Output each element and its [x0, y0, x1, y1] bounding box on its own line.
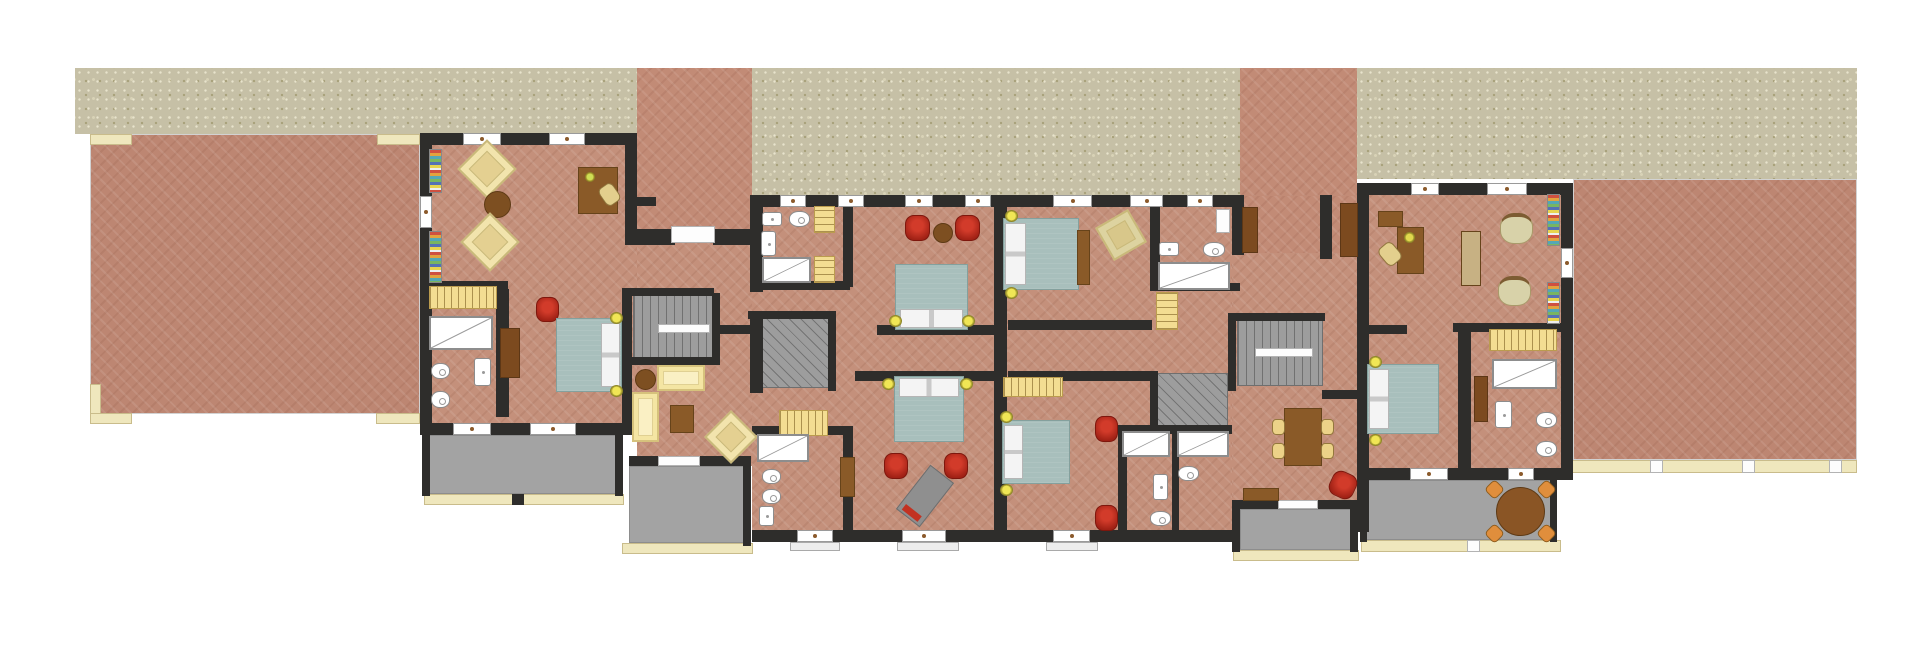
- window-u4-top-1: [1411, 183, 1439, 195]
- sofa-hall-1: [657, 365, 705, 391]
- wall-u3-bottom: [1008, 530, 1232, 542]
- sink-u3b: [1153, 474, 1168, 500]
- stair-unit2-landing: [658, 324, 710, 333]
- wall-porch2-right: [1320, 195, 1332, 259]
- wall-bal3-e: [1350, 502, 1358, 552]
- wall-bal2-e: [743, 456, 751, 546]
- sink-u4: [1495, 401, 1512, 428]
- wall-u1-desk-stub: [632, 197, 656, 206]
- wardrobe-u2-2: [779, 410, 828, 436]
- window-u1-left: [420, 196, 432, 228]
- bookshelf-u4-2: [1547, 282, 1560, 324]
- sideboard-u4: [1378, 211, 1403, 227]
- dining-table-u3: [1284, 408, 1322, 466]
- wall-u4-bath-w: [1458, 330, 1471, 470]
- wall-u2-bath1-e: [843, 207, 853, 287]
- bed-u3-2: [1002, 420, 1070, 484]
- gravel-right: [1357, 68, 1857, 179]
- sink-u2a-1: [762, 212, 782, 226]
- window-u2-top-4: [965, 195, 991, 207]
- door-u4-front: [1340, 203, 1358, 257]
- sink-u1: [474, 358, 491, 386]
- wall-u2-stair-s: [632, 357, 712, 365]
- door-u3-balcony: [1278, 500, 1318, 509]
- shower-u1: [429, 316, 493, 350]
- lamp-u3-2a: [1000, 411, 1013, 423]
- armchair-u2-red-4: [944, 453, 968, 479]
- wall-u2-stair-n: [632, 288, 714, 296]
- window-u2-top-2: [838, 195, 864, 207]
- sill-3: [1046, 542, 1098, 551]
- door-unit2-front: [671, 226, 715, 243]
- terrace-left-corner-bl: [90, 413, 132, 424]
- door-u2-balcony: [658, 456, 700, 466]
- wall-u2-winder-n: [748, 311, 836, 319]
- tub-chair-u4-2: [1498, 276, 1531, 306]
- balcony-unit3: [1240, 509, 1352, 550]
- wall-u1-right-n: [625, 133, 637, 237]
- bidet-u1: [431, 391, 450, 408]
- lamp-u2-1a: [889, 315, 902, 327]
- shower-u4: [1492, 359, 1557, 389]
- dining-chair-u3-4: [1321, 443, 1334, 459]
- dining-chair-u3-3: [1321, 419, 1334, 435]
- window-u4-top-2: [1487, 183, 1527, 195]
- wardrobe-u1: [429, 286, 497, 309]
- walkway-1: [637, 68, 752, 240]
- shower-u2b: [757, 434, 809, 462]
- toilet-u3c: [1150, 511, 1171, 526]
- sideboard-u3: [1243, 488, 1279, 501]
- wall-bal3-w: [1232, 502, 1240, 552]
- window-u3-top-2: [1130, 195, 1163, 207]
- rail-unit4-gap: [1467, 540, 1480, 552]
- bookshelf-u1-1: [429, 149, 442, 193]
- window-u1-bottom-2: [530, 423, 576, 435]
- lounger-u4: [1461, 231, 1481, 286]
- lamp-u1-2: [610, 385, 623, 397]
- sideboard-u2: [840, 457, 855, 497]
- side-table-hall: [635, 369, 656, 390]
- terrace-left-corner-br: [376, 413, 420, 424]
- wall-u1-right-s: [622, 288, 632, 435]
- lamp-u2-1b: [962, 315, 975, 327]
- rail-tr-gap-1: [1650, 460, 1663, 473]
- toilet-u1: [431, 363, 450, 379]
- rail-unit3: [1233, 550, 1359, 561]
- lamp-u2-2a: [882, 378, 895, 390]
- bookshelf-u1-2: [429, 231, 442, 283]
- rail-terrace-right: [1568, 460, 1857, 473]
- shower-u3b-1: [1122, 431, 1170, 457]
- wardrobe-u2a-2: [814, 256, 835, 283]
- sofa-hall-2: [632, 392, 659, 442]
- wall-u3-stair-n: [1232, 313, 1325, 321]
- wall-u3-bed1-s: [1008, 320, 1152, 330]
- wall-u4-right: [1561, 183, 1573, 480]
- shower-u3a: [1158, 262, 1230, 290]
- window-u3-top-3: [1187, 195, 1213, 207]
- bed-u1: [556, 318, 622, 392]
- toilet-u2b: [762, 469, 781, 484]
- rail-tr-gap-2: [1742, 460, 1755, 473]
- bed-u3-1: [1003, 218, 1079, 290]
- window-u4-bottom-2: [1508, 468, 1534, 480]
- lamp-u4-a: [1369, 356, 1382, 368]
- bidet-u2b: [762, 489, 781, 504]
- window-u1-top-2: [549, 133, 585, 145]
- wall-porch1-right: [713, 229, 752, 245]
- tub-chair-u4-1: [1500, 213, 1533, 244]
- wall-u2-winder-e: [828, 311, 836, 391]
- wall-u3-dining-n: [1322, 390, 1357, 399]
- wardrobe-u4: [1489, 329, 1557, 351]
- wall-u4-top: [1357, 183, 1573, 195]
- door-u4-bath: [1474, 376, 1488, 422]
- bench-u3: [1077, 230, 1090, 285]
- toilet-u4: [1536, 412, 1557, 428]
- patio-table-u4: [1496, 487, 1545, 536]
- wall-u2-stair-stub: [712, 325, 750, 334]
- shower-u2a: [762, 257, 811, 283]
- wall-u3-stair-w: [1228, 313, 1236, 391]
- wall-u4-hall-s: [1357, 325, 1407, 334]
- shower-u3b-2: [1177, 431, 1229, 457]
- terrace-left-corner-tl: [90, 134, 132, 145]
- door-u3-front: [1242, 207, 1258, 253]
- sill-2: [897, 542, 959, 551]
- balcony-unit2: [629, 466, 749, 543]
- stair-unit3-landing: [1255, 348, 1313, 357]
- stair-unit3-winder: [1156, 373, 1228, 431]
- wardrobe-u2a-1: [814, 206, 835, 233]
- toilet-u3a: [1203, 242, 1225, 257]
- walkway-2: [1240, 68, 1357, 196]
- wardrobe-u3a: [1156, 292, 1178, 330]
- gravel-mid: [752, 68, 1240, 196]
- lamp-u3-2b: [1000, 484, 1013, 496]
- wall-porch1-left: [625, 229, 675, 245]
- toilet-u3b: [1178, 466, 1199, 481]
- wall-bal1-w: [422, 425, 430, 496]
- terrace-left-corner-tr: [377, 134, 420, 145]
- wall-u2-left-s: [750, 313, 763, 393]
- terrace-left: [90, 134, 420, 414]
- bed-u2-1: [895, 264, 968, 330]
- desk-lamp-u4: [1404, 232, 1415, 243]
- sink-u3a: [1159, 242, 1179, 256]
- window-u3-top-1: [1053, 195, 1092, 207]
- bed-u2-2: [894, 376, 964, 442]
- window-u2-top-3: [905, 195, 933, 207]
- terrace-right: [1573, 179, 1857, 460]
- window-u1-bottom-1: [453, 423, 491, 435]
- wall-u3-winder-w: [1150, 371, 1158, 433]
- rail-unit2: [622, 543, 753, 554]
- window-u3-bottom-1: [1053, 530, 1090, 542]
- gravel-left: [75, 68, 637, 134]
- rail-unit1-pier: [512, 494, 524, 505]
- lamp-u1-1: [610, 312, 623, 324]
- sink-u2a-2: [761, 231, 776, 256]
- door-u1-bath: [500, 328, 520, 378]
- bidet-u4: [1536, 441, 1557, 457]
- dining-chair-u3-2: [1272, 443, 1285, 459]
- stair-unit2-winder: [754, 318, 830, 388]
- side-table-u2: [933, 223, 953, 243]
- lamp-u2-2b: [960, 378, 973, 390]
- lamp-u3-1b: [1005, 287, 1018, 299]
- lamp-u3-1a: [1005, 210, 1018, 222]
- armchair-u2-red-3: [884, 453, 908, 479]
- armchair-u2-red-1: [905, 215, 930, 241]
- window-u4-right: [1561, 248, 1573, 278]
- cabinet-u3-bath: [1216, 209, 1230, 233]
- rail-unit1: [424, 494, 624, 505]
- window-u2-bottom-2: [902, 530, 946, 542]
- wardrobe-u3-2: [1003, 377, 1063, 397]
- toilet-u2a: [789, 211, 810, 227]
- floor-plan: [0, 0, 1920, 645]
- armchair-u3-red-2: [1095, 505, 1118, 531]
- window-u4-bottom-1: [1410, 468, 1448, 480]
- wall-u2-bottom: [752, 530, 1008, 542]
- rail-tr-gap-3: [1829, 460, 1842, 473]
- armchair-u2-red-2: [955, 215, 980, 241]
- balcony-unit1: [426, 435, 621, 494]
- desk-lamp-u1: [585, 172, 595, 182]
- wall-bal4-w: [1360, 474, 1367, 542]
- bookshelf-u4-1: [1547, 194, 1560, 246]
- bed-u4: [1367, 364, 1439, 434]
- rail-unit4: [1361, 540, 1561, 552]
- window-u2-top-1: [780, 195, 806, 207]
- coffee-table-hall: [670, 405, 694, 433]
- wall-bal1-e: [615, 425, 623, 496]
- dining-chair-u3-1: [1272, 419, 1285, 435]
- armchair-u3-red-1: [1095, 416, 1118, 442]
- wall-u1-top: [420, 133, 637, 145]
- window-u2-bottom-1: [797, 530, 833, 542]
- sill-1: [790, 542, 840, 551]
- sink-u2b: [759, 506, 774, 526]
- lamp-u4-b: [1369, 434, 1382, 446]
